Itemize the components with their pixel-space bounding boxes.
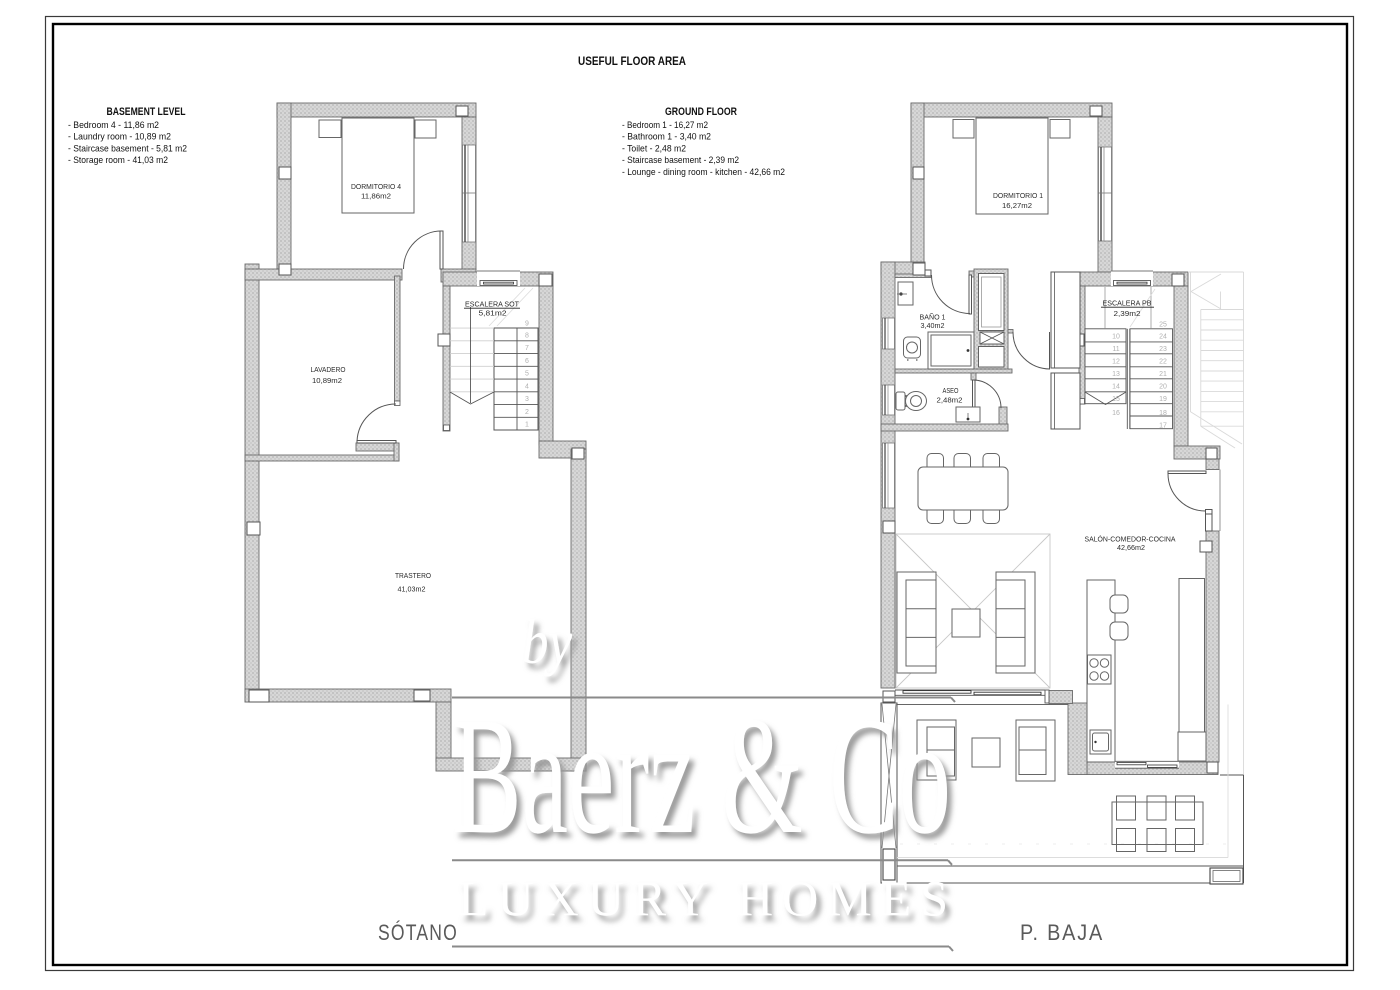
svg-text:- Storage room - 41,03 m2: - Storage room - 41,03 m2	[68, 155, 168, 166]
svg-text:23: 23	[1159, 346, 1167, 353]
svg-text:by: by	[522, 606, 572, 677]
svg-text:- Laundry room - 10,89 m2: - Laundry room - 10,89 m2	[68, 132, 171, 143]
svg-text:20: 20	[1159, 384, 1167, 391]
svg-text:- Bedroom 4 - 11,86 m2: - Bedroom 4 - 11,86 m2	[68, 120, 159, 131]
svg-text:P. BAJA: P. BAJA	[1020, 920, 1104, 945]
svg-text:DORMITORIO 1: DORMITORIO 1	[993, 193, 1043, 200]
svg-text:DORMITORIO 4: DORMITORIO 4	[351, 184, 401, 191]
svg-text:BAÑO 1: BAÑO 1	[920, 313, 946, 322]
svg-text:2: 2	[525, 409, 529, 416]
svg-text:BASEMENT LEVEL: BASEMENT LEVEL	[107, 106, 186, 118]
svg-text:Baerz & Co: Baerz & Co	[452, 683, 951, 869]
svg-text:10,89m2: 10,89m2	[312, 378, 342, 385]
svg-text:8: 8	[525, 333, 529, 340]
svg-text:4: 4	[525, 384, 529, 391]
svg-text:15: 15	[1112, 396, 1120, 403]
svg-text:- Staircase basement - 2,39 m2: - Staircase basement - 2,39 m2	[622, 155, 739, 166]
svg-text:TRASTERO: TRASTERO	[395, 573, 432, 580]
svg-text:3,40m2: 3,40m2	[921, 323, 945, 330]
svg-text:11: 11	[1112, 346, 1119, 353]
svg-text:16,27m2: 16,27m2	[1002, 203, 1032, 210]
svg-text:24: 24	[1159, 334, 1167, 341]
svg-text:5: 5	[525, 371, 529, 378]
svg-text:21: 21	[1159, 371, 1167, 378]
svg-text:10: 10	[1112, 334, 1120, 341]
svg-text:16: 16	[1112, 410, 1120, 417]
svg-text:ESCALERA SOT: ESCALERA SOT	[465, 302, 520, 309]
svg-text:42,66m2: 42,66m2	[1117, 545, 1145, 552]
svg-text:- Bedroom 1 - 16,27 m2: - Bedroom 1 - 16,27 m2	[622, 120, 708, 131]
svg-text:- Bathroom 1 - 3,40 m2: - Bathroom 1 - 3,40 m2	[622, 132, 711, 143]
svg-text:22: 22	[1159, 359, 1167, 366]
svg-text:19: 19	[1159, 396, 1167, 403]
svg-text:USEFUL FLOOR AREA: USEFUL FLOOR AREA	[578, 54, 686, 68]
svg-text:9: 9	[525, 321, 529, 328]
svg-text:ASEO: ASEO	[943, 388, 959, 395]
svg-text:7: 7	[525, 345, 529, 352]
svg-text:41,03m2: 41,03m2	[398, 587, 426, 594]
svg-text:18: 18	[1159, 410, 1167, 417]
svg-text:SÓTANO: SÓTANO	[378, 920, 458, 945]
svg-text:25: 25	[1159, 322, 1167, 329]
svg-text:11,86m2: 11,86m2	[361, 194, 391, 201]
svg-text:6: 6	[525, 358, 529, 365]
svg-text:GROUND FLOOR: GROUND FLOOR	[665, 106, 737, 118]
svg-text:LAVADERO: LAVADERO	[311, 367, 347, 374]
svg-text:- Staircase basement - 5,81 m2: - Staircase basement - 5,81 m2	[68, 143, 187, 154]
svg-text:3: 3	[525, 396, 529, 403]
svg-text:SALÓN-COMEDOR-COCINA: SALÓN-COMEDOR-COCINA	[1085, 535, 1176, 544]
svg-text:1: 1	[525, 422, 529, 429]
svg-text:14: 14	[1112, 384, 1120, 391]
svg-text:13: 13	[1112, 371, 1120, 378]
svg-text:17: 17	[1159, 423, 1167, 430]
svg-text:2,48m2: 2,48m2	[937, 398, 963, 405]
svg-text:- Lounge - dining room - kitch: - Lounge - dining room - kitchen - 42,66…	[622, 167, 785, 178]
svg-text:- Toilet - 2,48 m2: - Toilet - 2,48 m2	[622, 143, 686, 154]
svg-text:12: 12	[1112, 359, 1120, 366]
svg-text:5,81m2: 5,81m2	[479, 311, 507, 318]
svg-text:ESCALERA PB: ESCALERA PB	[1103, 301, 1152, 308]
svg-text:2,39m2: 2,39m2	[1114, 311, 1141, 318]
